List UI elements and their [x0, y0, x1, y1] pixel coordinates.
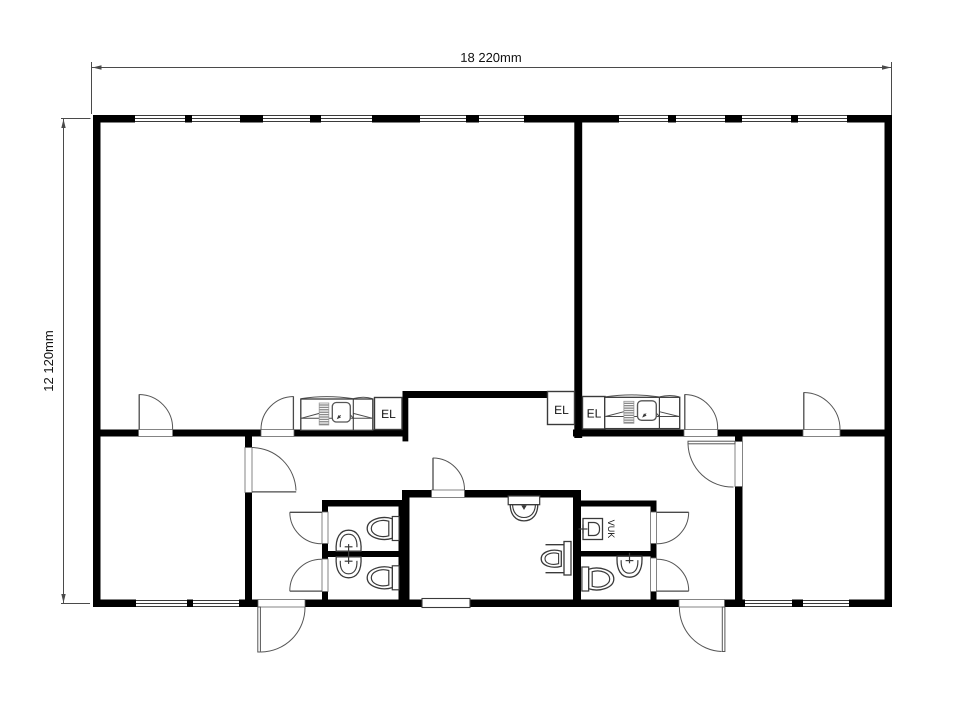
svg-text:EL: EL [381, 407, 396, 421]
svg-text:18 220mm: 18 220mm [460, 50, 521, 65]
svg-text:12 120mm: 12 120mm [41, 330, 56, 391]
svg-text:EL: EL [587, 406, 602, 420]
svg-text:EL: EL [554, 403, 569, 417]
svg-text:VUK: VUK [606, 520, 616, 539]
